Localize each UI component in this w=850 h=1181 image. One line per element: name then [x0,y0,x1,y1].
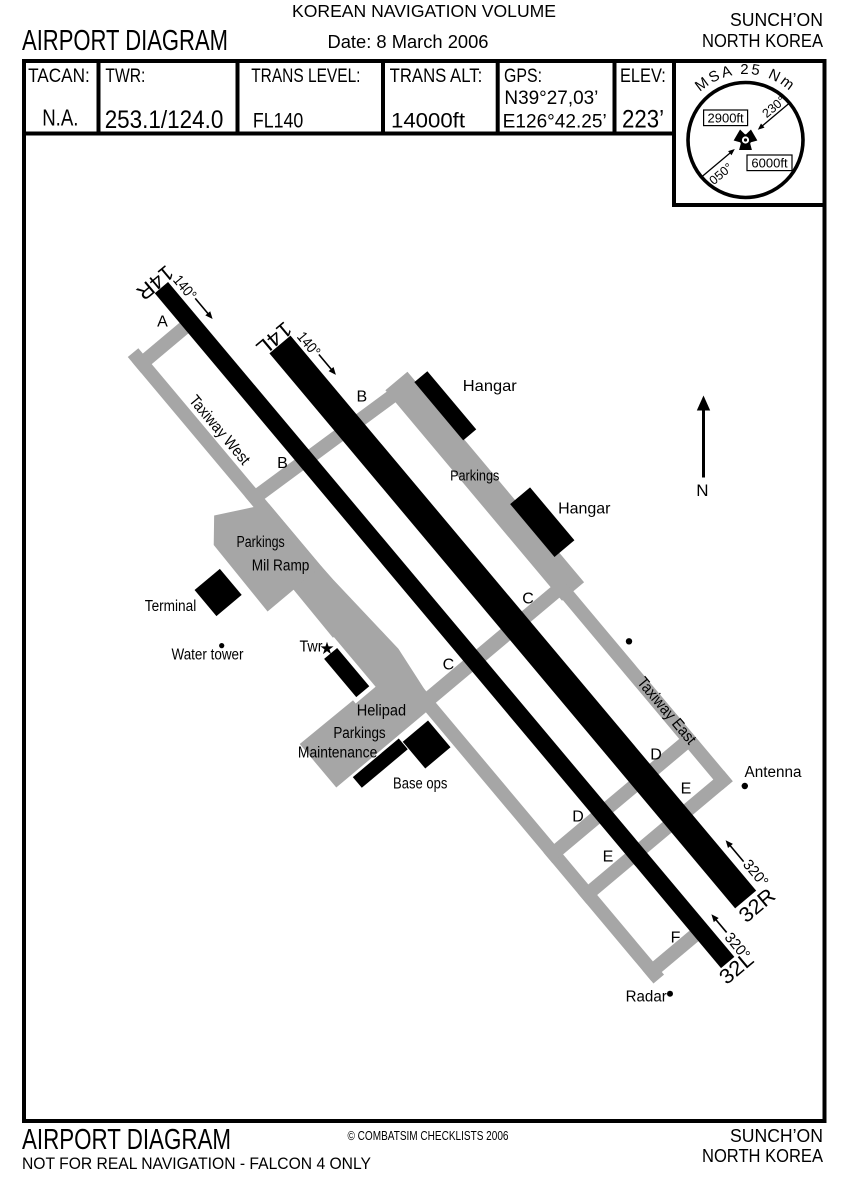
svg-text:GPS:: GPS: [504,65,542,87]
svg-text:D: D [572,809,584,826]
svg-text:TACAN:: TACAN: [28,65,90,87]
svg-text:E: E [603,849,614,866]
svg-text:Parkings: Parkings [333,725,386,742]
svg-text:Water tower: Water tower [172,647,244,664]
svg-text:N.A.: N.A. [42,105,78,131]
svg-text:Parkings: Parkings [237,534,285,551]
svg-text:Hangar: Hangar [558,500,611,517]
svg-text:B: B [356,389,367,406]
svg-text:N39°27,03’: N39°27,03’ [504,88,598,109]
svg-text:SUNCH’ON: SUNCH’ON [730,10,823,30]
svg-text:AIRPORT DIAGRAM: AIRPORT DIAGRAM [22,1124,231,1156]
svg-text:Date: 8 March 2006: Date: 8 March 2006 [328,32,489,52]
svg-text:F: F [671,930,681,947]
svg-text:TRANS LEVEL:: TRANS LEVEL: [251,65,360,87]
svg-text:Parkings: Parkings [450,468,499,485]
svg-text:223’: 223’ [622,106,664,134]
svg-text:ELEV:: ELEV: [620,65,666,87]
svg-text:Antenna: Antenna [745,764,802,781]
svg-text:SUNCH’ON: SUNCH’ON [730,1126,823,1146]
svg-text:Helipad: Helipad [357,702,406,719]
svg-text:TWR:: TWR: [105,65,145,87]
svg-text:Radar: Radar [626,989,667,1006]
svg-text:A: A [157,314,168,331]
svg-text:E126°42.25’: E126°42.25’ [503,112,607,133]
svg-text:E: E [681,781,692,798]
svg-text:AIRPORT DIAGRAM: AIRPORT DIAGRAM [22,25,228,57]
svg-text:14000ft: 14000ft [391,110,465,133]
svg-text:NORTH KOREA: NORTH KOREA [702,1146,823,1166]
svg-text:FL140: FL140 [253,110,303,133]
svg-text:Maintenance: Maintenance [298,745,377,762]
svg-text:B: B [277,455,288,472]
svg-text:253.1/124.0: 253.1/124.0 [105,106,224,134]
svg-text:C: C [522,591,534,608]
svg-text:© COMBATSIM CHECKLISTS 2006: © COMBATSIM CHECKLISTS 2006 [348,1129,509,1143]
svg-text:TRANS ALT:: TRANS ALT: [390,65,483,87]
svg-text:D: D [650,747,662,764]
svg-text:★: ★ [319,639,334,658]
svg-text:Mil Ramp: Mil Ramp [252,558,310,575]
svg-text:Base ops: Base ops [393,776,447,793]
svg-text:NOT FOR REAL NAVIGATION - FALC: NOT FOR REAL NAVIGATION - FALCON 4 ONLY [22,1155,371,1173]
svg-text:6000ft: 6000ft [751,156,788,171]
svg-text:N: N [696,481,708,500]
svg-text:KOREAN NAVIGATION VOLUME: KOREAN NAVIGATION VOLUME [292,1,556,21]
svg-text:Terminal: Terminal [145,598,197,615]
svg-text:Hangar: Hangar [463,378,518,395]
svg-text:C: C [443,657,455,674]
svg-text:2900ft: 2900ft [708,111,745,126]
svg-text:NORTH KOREA: NORTH KOREA [702,31,823,51]
